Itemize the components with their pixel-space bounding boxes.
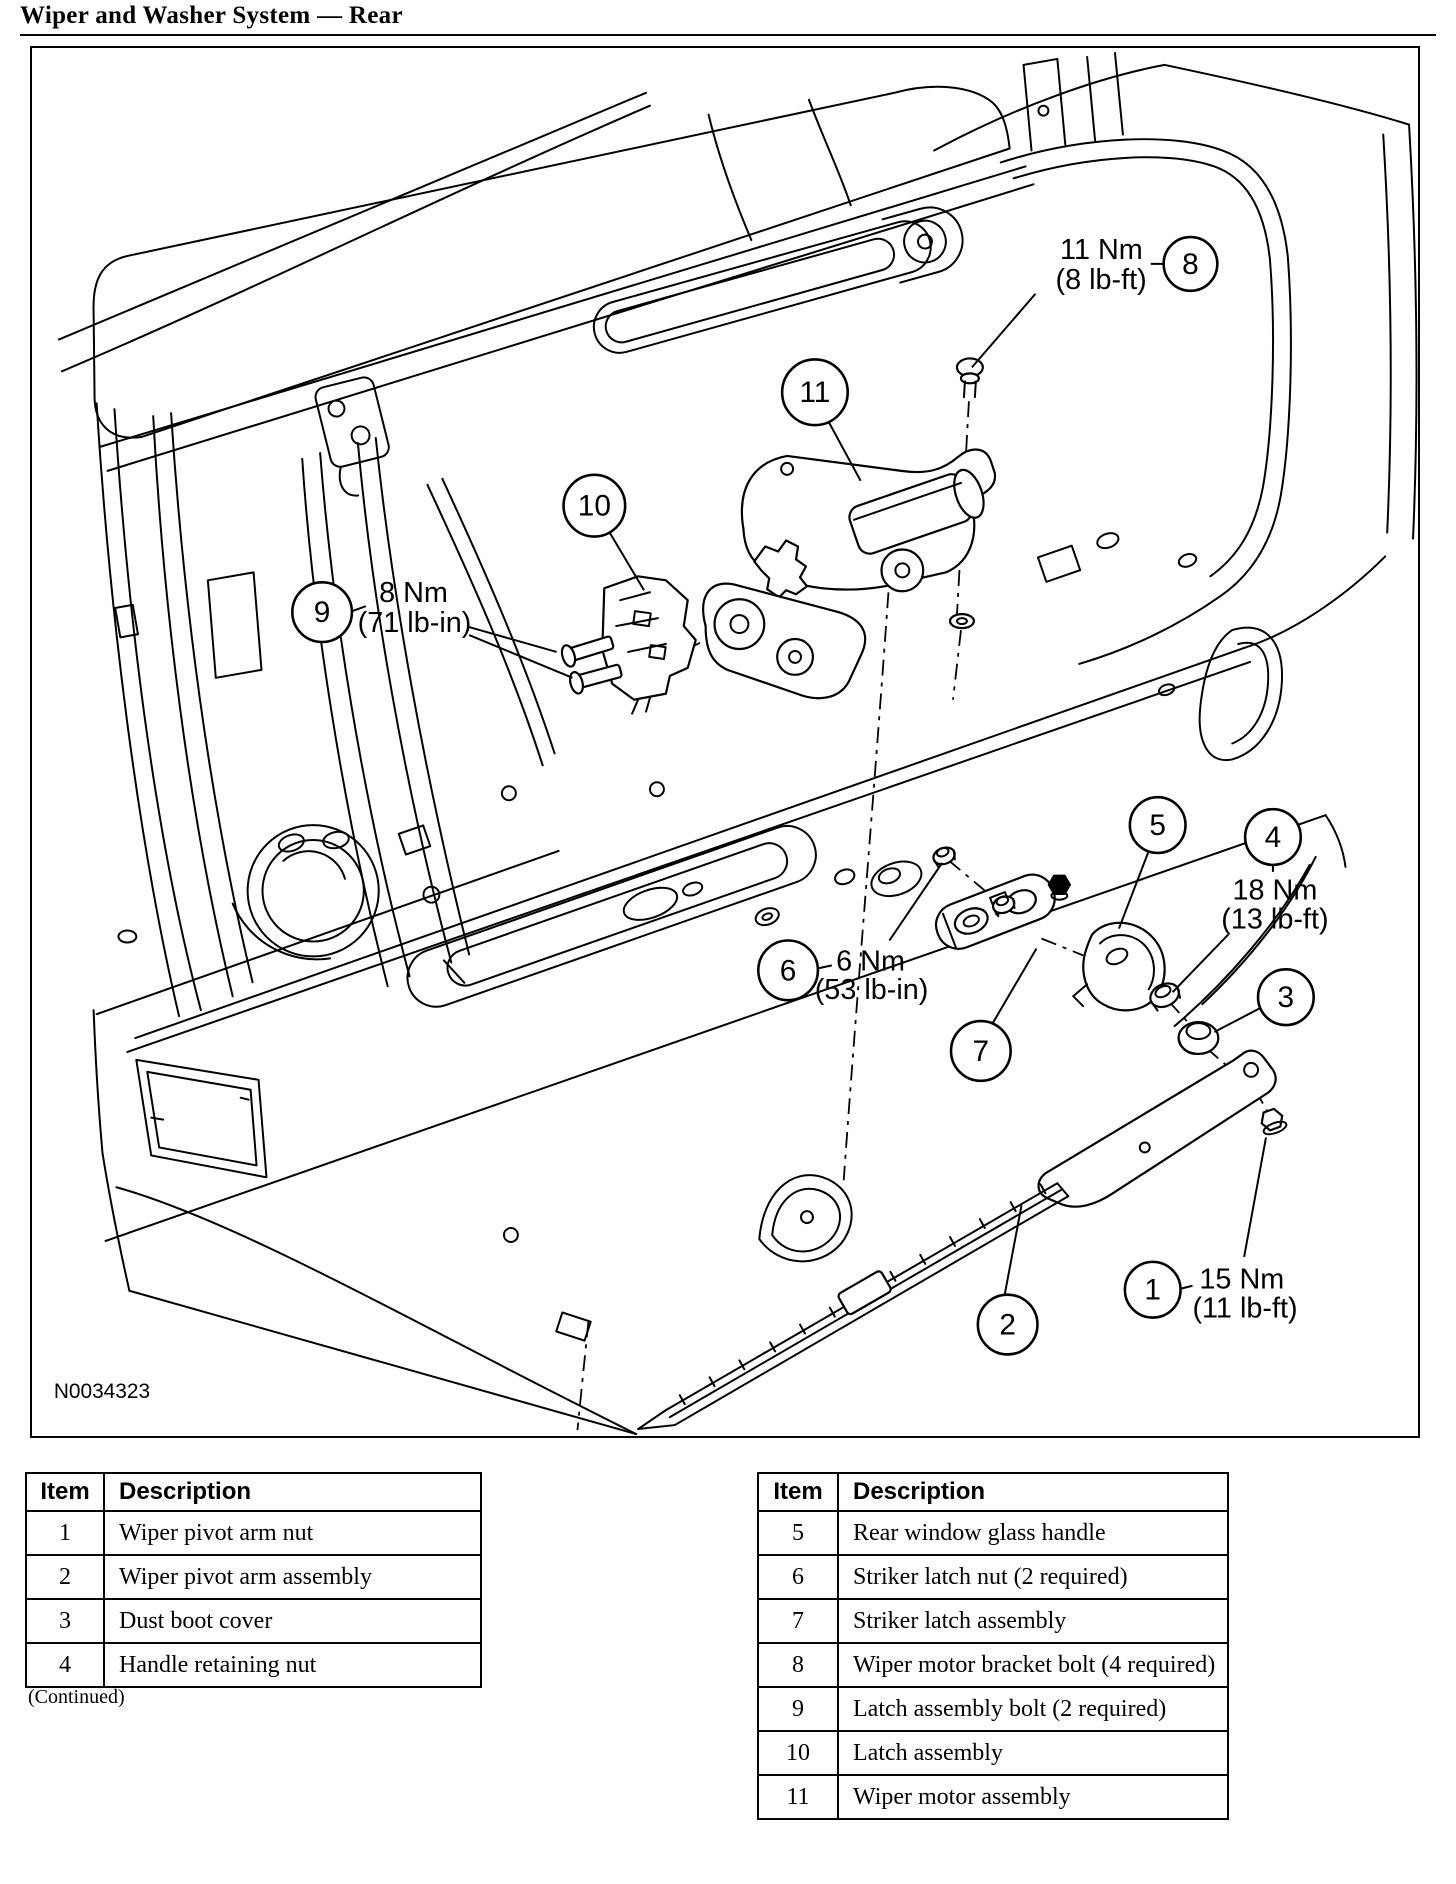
item-description: Wiper pivot arm nut xyxy=(104,1511,481,1555)
svg-text:4: 4 xyxy=(1265,821,1282,854)
column-header-description: Description xyxy=(104,1473,481,1511)
manual-page: Wiper and Washer System — Rear xyxy=(0,0,1456,1884)
item-description: Handle retaining nut xyxy=(104,1643,481,1687)
callouts: 1 2 3 4 5 6 7 8 9 10 11 xyxy=(292,237,1313,1354)
torque-8-alt: (8 lb-ft) xyxy=(1056,264,1147,296)
svg-text:7: 7 xyxy=(973,1035,990,1068)
torque-1-value: 15 Nm xyxy=(1199,1264,1284,1296)
torque-9-value: 8 Nm xyxy=(379,577,448,609)
callout-1: 1 xyxy=(1125,1262,1181,1318)
table-row: 5Rear window glass handle xyxy=(758,1511,1228,1555)
table-row: 10Latch assembly xyxy=(758,1731,1228,1775)
page-title: Wiper and Washer System — Rear xyxy=(20,2,1436,36)
item-description: Striker latch nut (2 required) xyxy=(838,1555,1228,1599)
callout-4: 4 xyxy=(1245,809,1301,865)
svg-text:1: 1 xyxy=(1144,1274,1161,1307)
item-description: Striker latch assembly xyxy=(838,1599,1228,1643)
table-header-row: Item Description xyxy=(758,1473,1228,1511)
table-header-row: Item Description xyxy=(26,1473,481,1511)
svg-text:5: 5 xyxy=(1149,809,1166,842)
svg-text:11: 11 xyxy=(799,376,830,409)
item-number: 8 xyxy=(758,1643,838,1687)
item-description: Latch assembly xyxy=(838,1731,1228,1775)
svg-text:2: 2 xyxy=(999,1308,1016,1341)
table-row: 7Striker latch assembly xyxy=(758,1599,1228,1643)
item-number: 1 xyxy=(26,1511,104,1555)
table-row: 9Latch assembly bolt (2 required) xyxy=(758,1687,1228,1731)
table-row: 11Wiper motor assembly xyxy=(758,1775,1228,1819)
torque-6-value: 6 Nm xyxy=(836,945,905,977)
item-number: 2 xyxy=(26,1555,104,1599)
exploded-view-figure: 11 Nm (8 lb-ft) 8 Nm (71 lb-in) 18 Nm (1… xyxy=(30,46,1420,1438)
column-header-item: Item xyxy=(758,1473,838,1511)
torque-1-alt: (11 lb-ft) xyxy=(1192,1293,1297,1325)
figure-id: N0034323 xyxy=(54,1380,150,1403)
item-number: 9 xyxy=(758,1687,838,1731)
callout-3: 3 xyxy=(1258,969,1314,1025)
item-number: 4 xyxy=(26,1643,104,1687)
latch-assembly-drawing xyxy=(602,576,695,713)
svg-text:9: 9 xyxy=(314,596,331,629)
callout-11: 11 xyxy=(782,359,848,425)
svg-text:6: 6 xyxy=(780,954,797,987)
svg-text:10: 10 xyxy=(578,490,611,523)
torque-6-alt: (53 lb-in) xyxy=(815,974,929,1006)
svg-text:8: 8 xyxy=(1182,248,1199,281)
item-number: 3 xyxy=(26,1599,104,1643)
torque-4-alt: (13 lb-ft) xyxy=(1221,904,1328,936)
item-number: 5 xyxy=(758,1511,838,1555)
item-description: Dust boot cover xyxy=(104,1599,481,1643)
callout-6: 6 xyxy=(758,940,818,1000)
callout-10: 10 xyxy=(564,475,626,537)
license-recess-drawing xyxy=(400,818,824,1015)
table-row: 6Striker latch nut (2 required) xyxy=(758,1555,1228,1599)
item-description: Wiper motor assembly xyxy=(838,1775,1228,1819)
torque-4-value: 18 Nm xyxy=(1232,875,1317,907)
items-table-left: Item Description 1Wiper pivot arm nut 2W… xyxy=(25,1472,482,1688)
item-number: 7 xyxy=(758,1599,838,1643)
column-header-description: Description xyxy=(838,1473,1228,1511)
table-row: 3Dust boot cover xyxy=(26,1599,481,1643)
item-description: Latch assembly bolt (2 required) xyxy=(838,1687,1228,1731)
callout-9: 9 xyxy=(292,582,352,642)
wiper-motor-bracket-drawing xyxy=(703,584,865,699)
callout-2: 2 xyxy=(978,1295,1038,1355)
items-table-right: Item Description 5Rear window glass hand… xyxy=(757,1472,1229,1820)
dust-boot-drawing xyxy=(1179,1022,1219,1054)
item-description: Wiper pivot arm assembly xyxy=(104,1555,481,1599)
item-description: Rear window glass handle xyxy=(838,1511,1228,1555)
pivot-arm-nut-drawing xyxy=(1258,1107,1288,1137)
item-number: 11 xyxy=(758,1775,838,1819)
liftgate-exploded-drawing: 11 Nm (8 lb-ft) 8 Nm (71 lb-in) 18 Nm (1… xyxy=(32,48,1418,1436)
torque-8-value: 11 Nm xyxy=(1060,234,1143,266)
item-description: Wiper motor bracket bolt (4 required) xyxy=(838,1643,1228,1687)
table-row: 1Wiper pivot arm nut xyxy=(26,1511,481,1555)
table-row: 2Wiper pivot arm assembly xyxy=(26,1555,481,1599)
column-header-item: Item xyxy=(26,1473,104,1511)
table-row: 4Handle retaining nut xyxy=(26,1643,481,1687)
callout-7: 7 xyxy=(951,1021,1011,1081)
svg-text:3: 3 xyxy=(1278,981,1295,1014)
item-number: 10 xyxy=(758,1731,838,1775)
wiper-motor-assembly-drawing xyxy=(742,450,995,598)
wiper-arm-drawing xyxy=(638,1051,1276,1429)
table-row: 8Wiper motor bracket bolt (4 required) xyxy=(758,1643,1228,1687)
torque-9-alt: (71 lb-in) xyxy=(358,607,472,639)
callout-8: 8 xyxy=(1164,237,1218,291)
item-number: 6 xyxy=(758,1555,838,1599)
callout-5: 5 xyxy=(1130,797,1186,853)
continued-note: (Continued) xyxy=(28,1686,125,1709)
